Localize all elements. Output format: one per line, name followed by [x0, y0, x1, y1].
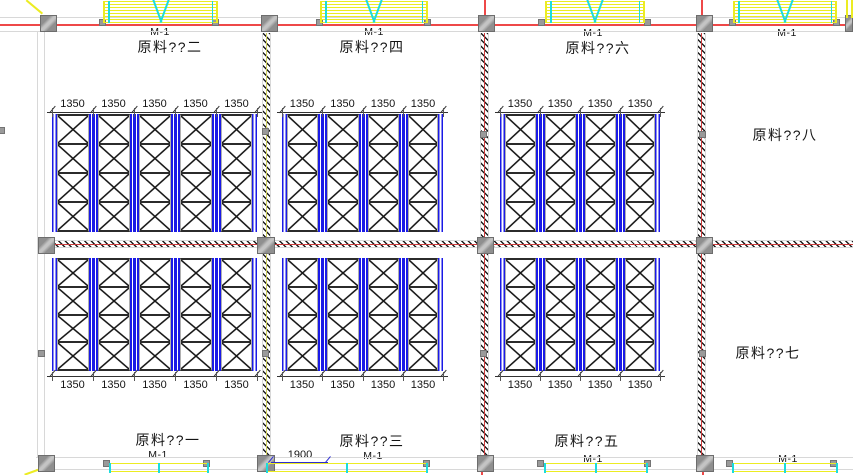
middle-hatched-wall [46, 240, 853, 248]
rack-post [438, 258, 443, 371]
door-leaf-cyan-line [159, 0, 169, 23]
door-edge-cyan-line [108, 1, 110, 23]
rack-shelf-x-brace [140, 174, 170, 203]
door-top [733, 1, 837, 23]
rack-block-lower-middle [282, 258, 443, 371]
dimension-label-bay: 1350 [101, 379, 125, 391]
rack-post [576, 114, 585, 232]
rack-shelf-x-brace [506, 260, 535, 288]
door-sill-cyan-tick [426, 463, 428, 473]
rack-shelf-x-brace [99, 203, 129, 230]
rack-block-upper-middle [282, 114, 443, 232]
rack-shelf-x-brace [58, 260, 88, 288]
rack-bay [287, 258, 318, 371]
room-label-bottom-left: 原料??一 [135, 430, 200, 450]
rack-post [399, 258, 408, 371]
rack-shelf-x-brace [99, 288, 129, 316]
dimension-extension [216, 108, 217, 117]
dimension-label-bay: 1350 [508, 379, 532, 391]
dimension-label-bay: 1350 [330, 98, 354, 110]
door-jamb-marker [538, 19, 545, 26]
rack-shelf-x-brace [328, 343, 358, 369]
dimension-extension [403, 108, 404, 117]
rack-bay [180, 114, 212, 232]
rack-shelf-x-brace [586, 260, 615, 288]
rack-shelf-x-brace [626, 343, 655, 369]
dimension-extension [580, 372, 581, 381]
rack-post [171, 114, 180, 232]
rack-bay [585, 258, 616, 371]
door-sill-cyan-tick [346, 463, 348, 473]
door-bottom-sill [733, 463, 837, 472]
door-tag-top-1: M-1 [150, 26, 170, 38]
rack-shelf-x-brace [58, 203, 88, 230]
rack-bay [327, 114, 359, 232]
door-sill-cyan-tick [158, 463, 160, 473]
dimension-extension [216, 372, 217, 381]
rack-shelf-x-brace [140, 260, 170, 288]
dimension-extension [175, 108, 176, 117]
room-label-lower-right: 原料??七 [735, 343, 800, 363]
rack-shelf-x-brace [222, 203, 252, 230]
dimension-extension [500, 372, 501, 381]
dimension-label-bay: 1350 [60, 98, 84, 110]
middle-wall-red-core [46, 244, 853, 246]
dimension-label-bay: 1350 [588, 98, 612, 110]
dimension-extension [282, 108, 283, 117]
rack-bay [505, 114, 536, 232]
rack-shelf-x-brace [506, 343, 535, 369]
door-sill-cyan-tick [109, 463, 111, 473]
rack-shelf-x-brace [546, 288, 575, 316]
dimension-extension [363, 372, 364, 381]
rack-shelf-x-brace [328, 116, 358, 145]
rack-post [252, 114, 257, 232]
rack-shelf-x-brace [99, 260, 129, 288]
column-marker [477, 237, 494, 254]
rack-post [252, 258, 257, 371]
door-bottom-sill [267, 463, 427, 472]
rack-post [399, 114, 408, 232]
dimension-line-door-width [271, 462, 328, 463]
rack-bay [327, 258, 359, 371]
dimension-label-bay: 1350 [508, 98, 532, 110]
rack-shelf-x-brace [409, 203, 438, 230]
door-edge-cyan-line [325, 1, 327, 23]
rack-post [130, 258, 139, 371]
rack-shelf-x-brace [58, 174, 88, 203]
door-tag-bottom-1: M-1 [148, 449, 168, 461]
rack-shelf-x-brace [222, 343, 252, 369]
rack-block-lower-left [52, 258, 257, 371]
rack-shelf-x-brace [181, 203, 211, 230]
dimension-extension [322, 372, 323, 381]
rack-shelf-x-brace [586, 316, 615, 344]
column-marker [38, 237, 55, 254]
rack-shelf-x-brace [140, 116, 170, 145]
door-tag-top-3: M-1 [583, 27, 603, 39]
door-sill-cyan-tick [544, 463, 546, 473]
rack-shelf-x-brace [222, 145, 252, 174]
rack-post [576, 258, 585, 371]
dimension-label-bay: 1350 [371, 98, 395, 110]
door-edge-cyan-line [738, 1, 740, 23]
column-marker [261, 15, 278, 32]
rack-bay [57, 114, 89, 232]
dimension-extension [134, 372, 135, 381]
rack-shelf-x-brace [181, 116, 211, 145]
rack-shelf-x-brace [288, 174, 317, 203]
rack-shelf-x-brace [626, 174, 655, 203]
dimension-extension [175, 372, 176, 381]
rack-shelf-x-brace [99, 316, 129, 344]
rack-shelf-x-brace [288, 203, 317, 230]
column-marker [696, 15, 713, 32]
rack-shelf-x-brace [181, 316, 211, 344]
rack-shelf-x-brace [369, 145, 398, 174]
dimension-extension [52, 372, 53, 381]
rack-shelf-x-brace [586, 343, 615, 369]
rack-shelf-x-brace [99, 343, 129, 369]
dimension-extension [134, 108, 135, 117]
dimension-label-bay: 1350 [183, 379, 207, 391]
rack-shelf-x-brace [546, 316, 575, 344]
top-wall-inner-line [0, 31, 853, 32]
room-label-upper-right: 原料??八 [752, 125, 817, 145]
door-sill-cyan-tick [732, 463, 734, 473]
rack-shelf-x-brace [409, 260, 438, 288]
dimension-label-bay: 1350 [101, 98, 125, 110]
rack-bay [505, 258, 536, 371]
column-marker [696, 237, 713, 254]
rack-shelf-x-brace [222, 116, 252, 145]
dimension-label-bay: 1350 [628, 98, 652, 110]
rack-post [359, 258, 368, 371]
dimension-extension [660, 372, 661, 381]
rack-block-upper-left [52, 114, 257, 232]
wall-anchor-marker [262, 128, 269, 135]
rack-shelf-x-brace [586, 145, 615, 174]
dimension-extension [322, 108, 323, 117]
rack-shelf-x-brace [546, 343, 575, 369]
dimension-extension [403, 372, 404, 381]
rack-shelf-x-brace [506, 116, 535, 145]
rack-shelf-x-brace [369, 316, 398, 344]
dimension-extension [93, 108, 94, 117]
column-marker [477, 455, 494, 472]
wall-anchor-marker [38, 350, 45, 357]
rack-shelf-x-brace [409, 343, 438, 369]
rack-shelf-x-brace [409, 145, 438, 174]
rack-bay [625, 114, 656, 232]
dimension-label-bay: 1350 [290, 98, 314, 110]
rack-shelf-x-brace [181, 260, 211, 288]
rack-bay [221, 114, 253, 232]
rack-shelf-x-brace [409, 116, 438, 145]
rack-bay [585, 114, 616, 232]
rack-shelf-x-brace [626, 145, 655, 174]
rack-post [655, 114, 660, 232]
door-tag-top-4: M-1 [777, 27, 797, 39]
dimension-label-bay: 1350 [290, 379, 314, 391]
rack-shelf-x-brace [506, 145, 535, 174]
dimension-extension [580, 108, 581, 117]
rack-shelf-x-brace [586, 116, 615, 145]
door-sill-cyan-tick [836, 463, 838, 473]
column-marker [40, 15, 57, 32]
door-bottom-sill [545, 463, 647, 472]
rack-shelf-x-brace [181, 174, 211, 203]
door-edge-cyan-line [639, 1, 641, 23]
dimension-line [47, 376, 262, 377]
rack-shelf-x-brace [140, 343, 170, 369]
rack-shelf-x-brace [328, 260, 358, 288]
door-bottom-sill [110, 463, 208, 472]
rack-shelf-x-brace [58, 145, 88, 174]
dimension-extension [443, 108, 444, 117]
rack-shelf-x-brace [586, 288, 615, 316]
column-marker [478, 15, 495, 32]
dimension-extension [363, 108, 364, 117]
rack-shelf-x-brace [626, 316, 655, 344]
wall-anchor-marker [262, 350, 269, 357]
door-leaf-cyan-line [783, 0, 793, 23]
rack-post [89, 114, 98, 232]
rack-shelf-x-brace [99, 116, 129, 145]
room-label-top-right: 原料??六 [565, 38, 630, 58]
rack-post [318, 258, 327, 371]
rack-shelf-x-brace [369, 343, 398, 369]
rack-shelf-x-brace [181, 145, 211, 174]
rack-bay [139, 258, 171, 371]
rack-shelf-x-brace [288, 260, 317, 288]
rack-shelf-x-brace [626, 203, 655, 230]
dimension-extension [282, 372, 283, 381]
column-marker [696, 455, 714, 472]
rack-shelf-x-brace [181, 343, 211, 369]
rack-shelf-x-brace [369, 203, 398, 230]
rack-shelf-x-brace [506, 203, 535, 230]
rack-post [655, 258, 660, 371]
door-sill-cyan-tick [784, 463, 786, 473]
dimension-extension [93, 372, 94, 381]
rack-post [359, 114, 368, 232]
door-sill-cyan-tick [595, 463, 597, 473]
rack-shelf-x-brace [140, 288, 170, 316]
rack-bay [368, 114, 399, 232]
rack-shelf-x-brace [328, 316, 358, 344]
rack-shelf-x-brace [222, 316, 252, 344]
room-label-top-left: 原料??二 [137, 37, 202, 57]
rack-post [536, 258, 545, 371]
dimension-label-bay: 1350 [142, 98, 166, 110]
dimension-label-bay: 1350 [628, 379, 652, 391]
rack-shelf-x-brace [369, 288, 398, 316]
rack-bay [545, 258, 576, 371]
rack-shelf-x-brace [506, 288, 535, 316]
dimension-extension [660, 108, 661, 117]
rack-shelf-x-brace [546, 145, 575, 174]
rack-shelf-x-brace [140, 316, 170, 344]
rack-shelf-x-brace [506, 174, 535, 203]
rack-shelf-x-brace [328, 203, 358, 230]
door-sill-cyan-tick [266, 463, 268, 473]
rack-shelf-x-brace [369, 260, 398, 288]
rack-shelf-x-brace [328, 145, 358, 174]
rack-bay [287, 114, 318, 232]
rack-shelf-x-brace [328, 174, 358, 203]
wall-anchor-marker [699, 350, 706, 357]
corner-diagonal-line [26, 0, 43, 14]
rack-post [212, 114, 221, 232]
dimension-label-bay: 1350 [142, 379, 166, 391]
dimension-extension [500, 108, 501, 117]
wall-anchor-marker [480, 350, 487, 357]
rack-shelf-x-brace [288, 116, 317, 145]
wall-anchor-marker [0, 127, 5, 134]
dimension-extension [257, 372, 258, 381]
rack-shelf-x-brace [409, 174, 438, 203]
column-marker [38, 455, 55, 472]
dimension-label-bay: 1350 [371, 379, 395, 391]
rack-shelf-x-brace [409, 316, 438, 344]
rack-shelf-x-brace [58, 343, 88, 369]
rack-shelf-x-brace [546, 260, 575, 288]
door-top-partial [846, 0, 853, 18]
wall-anchor-marker [480, 131, 487, 138]
dimension-line [47, 112, 262, 113]
rack-post [318, 114, 327, 232]
rack-bay [221, 258, 253, 371]
door-tag-bottom-2: M-1 [363, 450, 383, 462]
rack-bay [98, 258, 130, 371]
rack-shelf-x-brace [140, 145, 170, 174]
rack-shelf-x-brace [546, 116, 575, 145]
floor-plan-canvas: 原料??二 原料??四 原料??六 原料??八 原料??七 原料??一 原料??… [0, 0, 853, 475]
dimension-extension [257, 108, 258, 117]
rack-bay [408, 114, 439, 232]
door-sill-cyan-tick [207, 463, 209, 473]
rack-shelf-x-brace [288, 316, 317, 344]
door-leaf-cyan-line [372, 0, 382, 23]
door-leaf-cyan-line [593, 0, 603, 23]
dimension-label-bay: 1350 [183, 98, 207, 110]
dimension-extension [620, 372, 621, 381]
dimension-extension [540, 372, 541, 381]
rack-post [89, 258, 98, 371]
dimension-label-bay: 1350 [548, 98, 572, 110]
dimension-label-bay: 1350 [588, 379, 612, 391]
rack-bay [625, 258, 656, 371]
rack-shelf-x-brace [546, 203, 575, 230]
rack-post [438, 114, 443, 232]
dimension-label-bay: 1350 [224, 379, 248, 391]
door-sill-cyan-tick [646, 463, 648, 473]
rack-block-lower-right [500, 258, 660, 371]
rack-post [616, 258, 625, 371]
room-label-top-middle: 原料??四 [339, 37, 404, 57]
rack-shelf-x-brace [222, 174, 252, 203]
dimension-label-bay: 1350 [60, 379, 84, 391]
dimension-label-bay: 1350 [330, 379, 354, 391]
door-edge-cyan-line [422, 1, 424, 23]
rack-shelf-x-brace [586, 174, 615, 203]
room-label-bottom-right: 原料??五 [554, 431, 619, 451]
door-top [320, 1, 428, 23]
rack-shelf-x-brace [506, 316, 535, 344]
rack-shelf-x-brace [328, 288, 358, 316]
rack-shelf-x-brace [369, 174, 398, 203]
rack-shelf-x-brace [222, 288, 252, 316]
dimension-extension [620, 108, 621, 117]
rack-bay [57, 258, 89, 371]
dimension-extension [540, 108, 541, 117]
dimension-label-bay: 1350 [224, 98, 248, 110]
rack-shelf-x-brace [181, 288, 211, 316]
rack-bay [368, 258, 399, 371]
wall-anchor-marker [699, 131, 706, 138]
door-jamb-marker [644, 19, 651, 26]
rack-shelf-x-brace [288, 145, 317, 174]
rack-shelf-x-brace [99, 145, 129, 174]
rack-shelf-x-brace [546, 174, 575, 203]
rack-shelf-x-brace [58, 288, 88, 316]
dimension-extension [443, 372, 444, 381]
rack-shelf-x-brace [586, 203, 615, 230]
door-jamb-marker [537, 460, 544, 467]
rack-shelf-x-brace [626, 116, 655, 145]
rack-shelf-x-brace [369, 116, 398, 145]
rack-bay [408, 258, 439, 371]
rack-shelf-x-brace [222, 260, 252, 288]
dimension-label-bay: 1350 [548, 379, 572, 391]
door-edge-cyan-line [550, 1, 552, 23]
rack-shelf-x-brace [58, 316, 88, 344]
rack-shelf-x-brace [626, 288, 655, 316]
door-top [103, 1, 218, 23]
door-edge-cyan-line [831, 1, 833, 23]
column-marker [257, 237, 275, 254]
dimension-label-bay: 1350 [411, 379, 435, 391]
rack-shelf-x-brace [626, 260, 655, 288]
rack-post [212, 258, 221, 371]
rack-shelf-x-brace [99, 174, 129, 203]
rack-block-upper-right [500, 114, 660, 232]
rack-post [536, 114, 545, 232]
rack-post [171, 258, 180, 371]
rack-shelf-x-brace [140, 203, 170, 230]
door-tag-top-2: M-1 [364, 26, 384, 38]
rack-shelf-x-brace [288, 288, 317, 316]
dimension-extension [52, 108, 53, 117]
rack-shelf-x-brace [58, 116, 88, 145]
rack-shelf-x-brace [288, 343, 317, 369]
door-edge-cyan-line [212, 1, 214, 23]
door-top [545, 1, 645, 23]
rack-bay [180, 258, 212, 371]
rack-bay [98, 114, 130, 232]
rack-shelf-x-brace [409, 288, 438, 316]
dimension-label-door-width: 1900 [288, 449, 312, 461]
bottom-wall-outer-line [36, 457, 853, 458]
room-label-bottom-middle: 原料??三 [339, 431, 404, 451]
dimension-label-bay: 1350 [411, 98, 435, 110]
rack-post [616, 114, 625, 232]
rack-post [130, 114, 139, 232]
rack-bay [545, 114, 576, 232]
rack-bay [139, 114, 171, 232]
